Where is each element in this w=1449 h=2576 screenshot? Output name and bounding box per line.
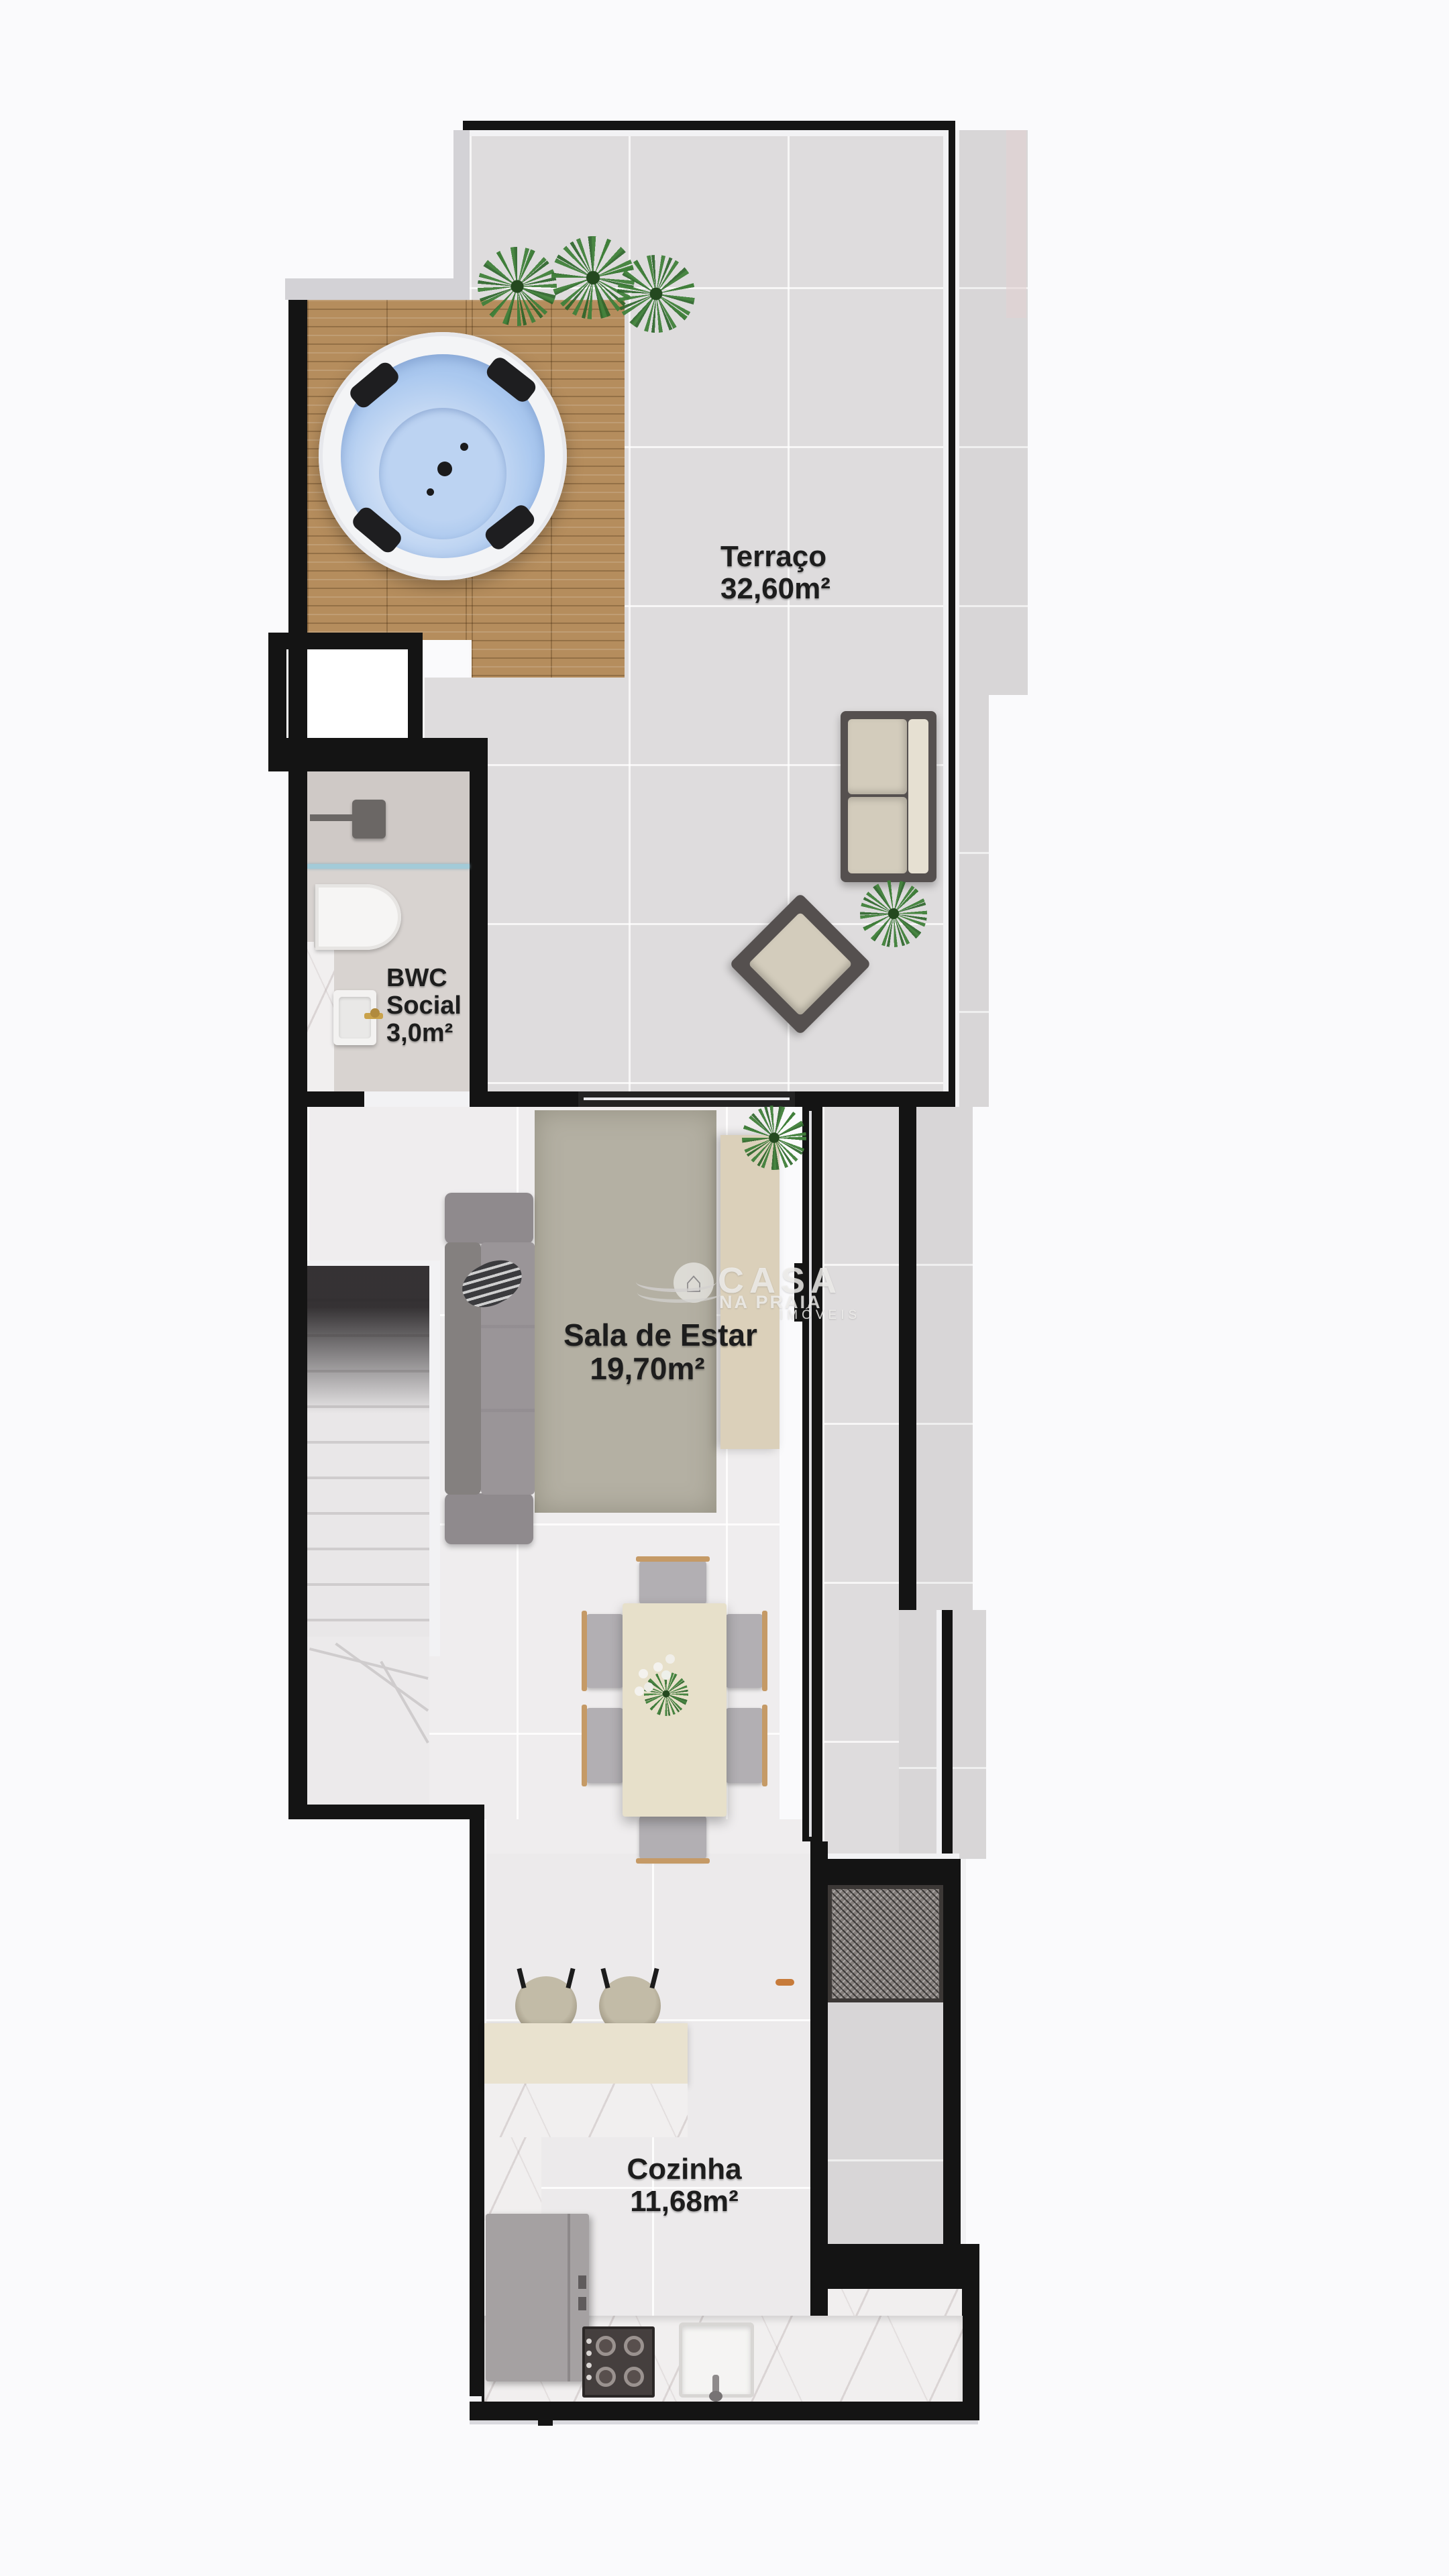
service-shaft-floor bbox=[828, 2002, 943, 2244]
wave-icon bbox=[637, 1283, 722, 1303]
shower-arm bbox=[310, 814, 353, 821]
outdoor-sofa-cushion bbox=[848, 719, 907, 794]
dining-chair bbox=[586, 1708, 624, 1783]
refrigerator-handle bbox=[578, 2275, 586, 2289]
dining-chair bbox=[639, 1560, 706, 1605]
bathroom-name-line1: BWC bbox=[386, 965, 462, 992]
floor-plan: Terraço 32,60m² BWC Social 3,0m² Sala de… bbox=[0, 0, 1449, 2576]
side-wall-light-v bbox=[453, 130, 470, 300]
shower-head bbox=[352, 800, 386, 839]
kitchen-counter-top bbox=[484, 2084, 688, 2137]
dining-chair-back bbox=[636, 1858, 710, 1864]
living-top-wall-b bbox=[470, 1091, 578, 1107]
bathroom-area: 3,0m² bbox=[386, 1020, 462, 1047]
bottom-left-tab bbox=[470, 2396, 482, 2402]
refrigerator bbox=[486, 2214, 589, 2381]
stairs-frame-right bbox=[429, 1260, 440, 1656]
parapet-mid-right bbox=[959, 695, 989, 1107]
balcony-outer-wall bbox=[899, 1107, 916, 1610]
cooktop-burner bbox=[624, 2336, 644, 2356]
bathroom-right-wall bbox=[470, 771, 488, 1091]
living-area: 19,70m² bbox=[563, 1352, 731, 1386]
service-bottom-wall bbox=[810, 2244, 979, 2274]
room-label-kitchen: Cozinha 11,68m² bbox=[604, 2153, 765, 2217]
barbecue-grill bbox=[828, 1885, 943, 2002]
living-window-glass bbox=[809, 1111, 812, 1837]
terrace-right-frame-in bbox=[943, 130, 949, 1107]
side-wall-light-h bbox=[285, 278, 470, 300]
room-label-living: Sala de Estar 19,70m² bbox=[563, 1319, 731, 1385]
stairs-frame-top bbox=[307, 1260, 440, 1266]
bottom-wall-tab bbox=[538, 2418, 553, 2426]
dining-chair-back bbox=[582, 1611, 587, 1691]
dining-chair bbox=[586, 1614, 624, 1688]
refrigerator-door-line bbox=[568, 2214, 570, 2381]
service-right-frame bbox=[961, 1859, 966, 2274]
living-top-wall-a bbox=[307, 1091, 364, 1107]
terrace-sliding-door-glass bbox=[584, 1097, 790, 1100]
terrace-right-glass-wall bbox=[949, 130, 955, 1107]
hot-tub-jet-dot bbox=[460, 443, 468, 451]
left-wall bbox=[288, 300, 307, 1819]
breakfast-counter bbox=[484, 2023, 688, 2084]
dining-chair-back bbox=[762, 1705, 767, 1786]
dining-chair-back bbox=[762, 1611, 767, 1691]
flower-centerpiece-blooms bbox=[639, 1669, 648, 1678]
corner-glass-rail bbox=[942, 1610, 953, 1859]
kitchen-left-wall bbox=[470, 1805, 484, 2420]
service-top-frame bbox=[828, 1854, 959, 1859]
watermark-tagline: IMÓVEIS bbox=[780, 1308, 861, 1323]
toilet bbox=[315, 884, 401, 950]
bathroom-marble-strip bbox=[307, 942, 334, 1091]
dining-chair-back bbox=[636, 1556, 710, 1562]
hot-tub-jet-dot bbox=[437, 462, 452, 476]
sink-faucet-base bbox=[709, 2391, 722, 2402]
corner-rail-frame bbox=[936, 1610, 942, 1859]
cooktop-burner bbox=[624, 2367, 644, 2387]
cooktop-knobs bbox=[586, 2339, 592, 2344]
cooktop bbox=[582, 2326, 655, 2398]
living-top-wall-c bbox=[795, 1091, 955, 1107]
watermark: ⌂ CASA NA PRAIA IMÓVEIS bbox=[631, 1254, 926, 1322]
living-name: Sala de Estar bbox=[563, 1319, 731, 1352]
room-label-terrace: Terraço 32,60m² bbox=[720, 541, 830, 604]
bathroom-door-opening bbox=[364, 1091, 470, 1107]
cooktop-burner bbox=[596, 2336, 616, 2356]
room-label-bathroom: BWC Social 3,0m² bbox=[386, 965, 462, 1047]
parapet-shadow-strip bbox=[1006, 130, 1026, 318]
hot-tub-jet-dot bbox=[427, 488, 434, 496]
outdoor-sofa-cushion bbox=[848, 797, 907, 873]
top-wall-frame bbox=[470, 130, 949, 136]
balcony-parapet-outer bbox=[916, 1107, 973, 1610]
terrace-area: 32,60m² bbox=[720, 573, 830, 605]
service-left-wall bbox=[810, 1841, 828, 2274]
refrigerator-handle bbox=[578, 2297, 586, 2310]
indoor-sofa-armrest bbox=[445, 1493, 533, 1544]
service-right-wall bbox=[943, 1859, 961, 2274]
top-wall bbox=[463, 121, 955, 130]
door-handle bbox=[775, 1979, 794, 1986]
glass-partition bbox=[307, 864, 470, 869]
dining-chair bbox=[725, 1708, 763, 1783]
staircase-void-shadow bbox=[307, 1266, 429, 1413]
outdoor-sofa-backrest bbox=[908, 719, 928, 873]
dining-chair bbox=[725, 1614, 763, 1688]
kitchen-area: 11,68m² bbox=[604, 2186, 765, 2218]
terrace-name: Terraço bbox=[720, 541, 830, 573]
living-window-slider bbox=[802, 1107, 822, 1841]
dining-chair-back bbox=[582, 1705, 587, 1786]
bathroom-name-line2: Social bbox=[386, 992, 462, 1020]
vanity-faucet-knob bbox=[370, 1008, 380, 1018]
kitchen-name: Cozinha bbox=[604, 2153, 765, 2186]
indoor-sofa-armrest bbox=[445, 1193, 533, 1244]
balcony-strip bbox=[822, 1107, 899, 1859]
terrace-right-frame-out bbox=[955, 130, 959, 1107]
dining-chair bbox=[639, 1815, 706, 1860]
kitchen-counter-left bbox=[484, 2137, 541, 2220]
cooktop-burner bbox=[596, 2367, 616, 2387]
stairs-bottom-wall bbox=[288, 1805, 484, 1819]
